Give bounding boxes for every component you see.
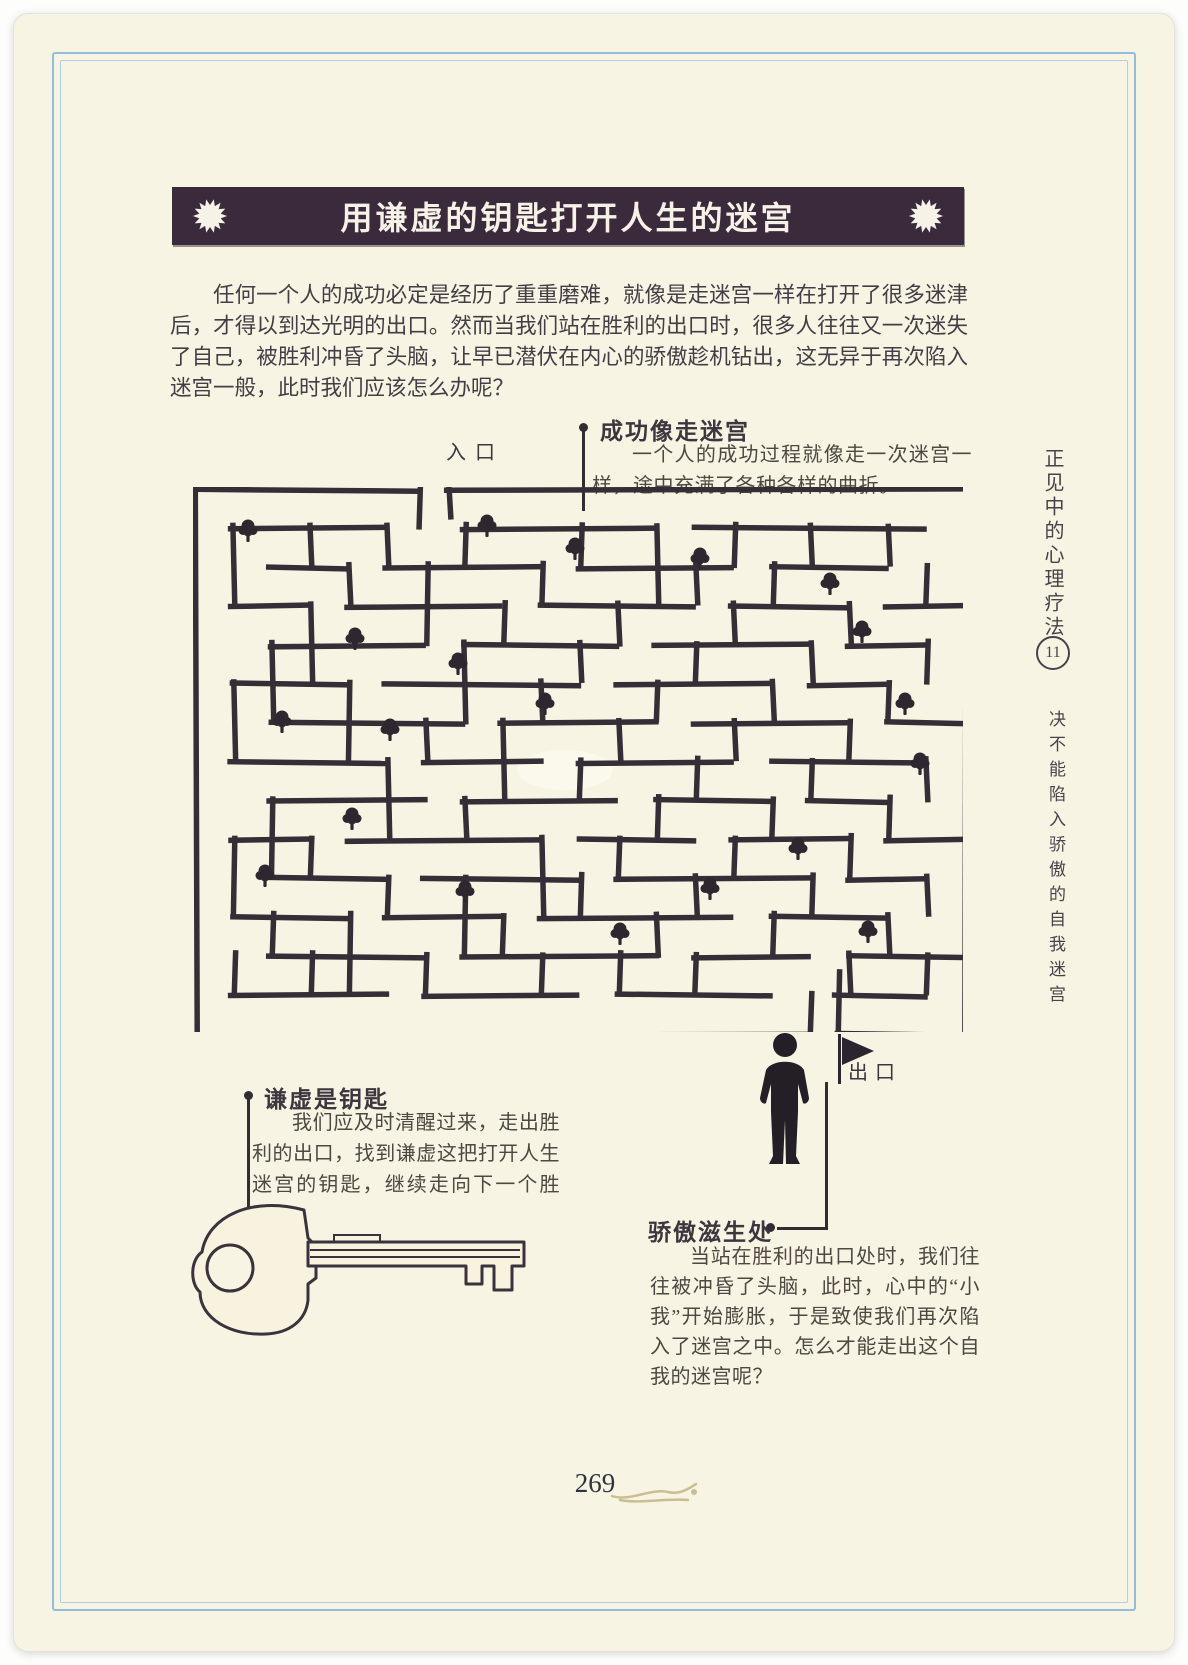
- sidebar-chapter-title: 决不能陷入骄傲的自我迷宫: [1043, 710, 1068, 1010]
- page-title: 用谦虚的钥匙打开人生的迷宫: [340, 193, 795, 239]
- person-silhouette: [752, 1032, 818, 1166]
- flower-icon: [190, 196, 230, 236]
- tree-icon: [478, 515, 497, 538]
- flourish-ornament: [610, 1478, 700, 1504]
- tree-icon: [239, 520, 258, 543]
- maze-entrance-label: 入口: [446, 436, 504, 465]
- callout-pride-body: 当站在胜利的出口处时，我们往往被冲昏了头脑，此时，心中的“小我”开始膨胀，于是致…: [650, 1242, 980, 1392]
- flag-pole: [838, 1034, 841, 1084]
- flower-icon: [906, 196, 946, 236]
- callout-leader-line: [777, 1227, 827, 1230]
- callout-leader-line: [825, 1082, 828, 1230]
- tree-icon: [343, 808, 362, 831]
- paper-sheen: [517, 750, 613, 790]
- key-illustration: [184, 1188, 536, 1340]
- maze-illustration: [193, 487, 963, 1032]
- tree-icon: [896, 693, 915, 716]
- tree-icon: [859, 921, 878, 944]
- sidebar-book-title: 正见中的心理疗法: [1038, 448, 1067, 640]
- tree-icon: [536, 693, 555, 716]
- tree-icon: [456, 881, 475, 904]
- chapter-title-banner: 用谦虚的钥匙打开人生的迷宫: [172, 187, 964, 245]
- tree-icon: [821, 573, 840, 596]
- tree-icon: [853, 621, 872, 644]
- maze-exit-label: 出口: [848, 1056, 902, 1085]
- intro-paragraph: 任何一个人的成功必定是经历了重重磨难，就像是走迷宫一样在打开了很多迷津后，才得以…: [170, 280, 968, 404]
- sidebar-chapter-number-badge: 11: [1036, 636, 1070, 670]
- tree-icon: [611, 923, 630, 946]
